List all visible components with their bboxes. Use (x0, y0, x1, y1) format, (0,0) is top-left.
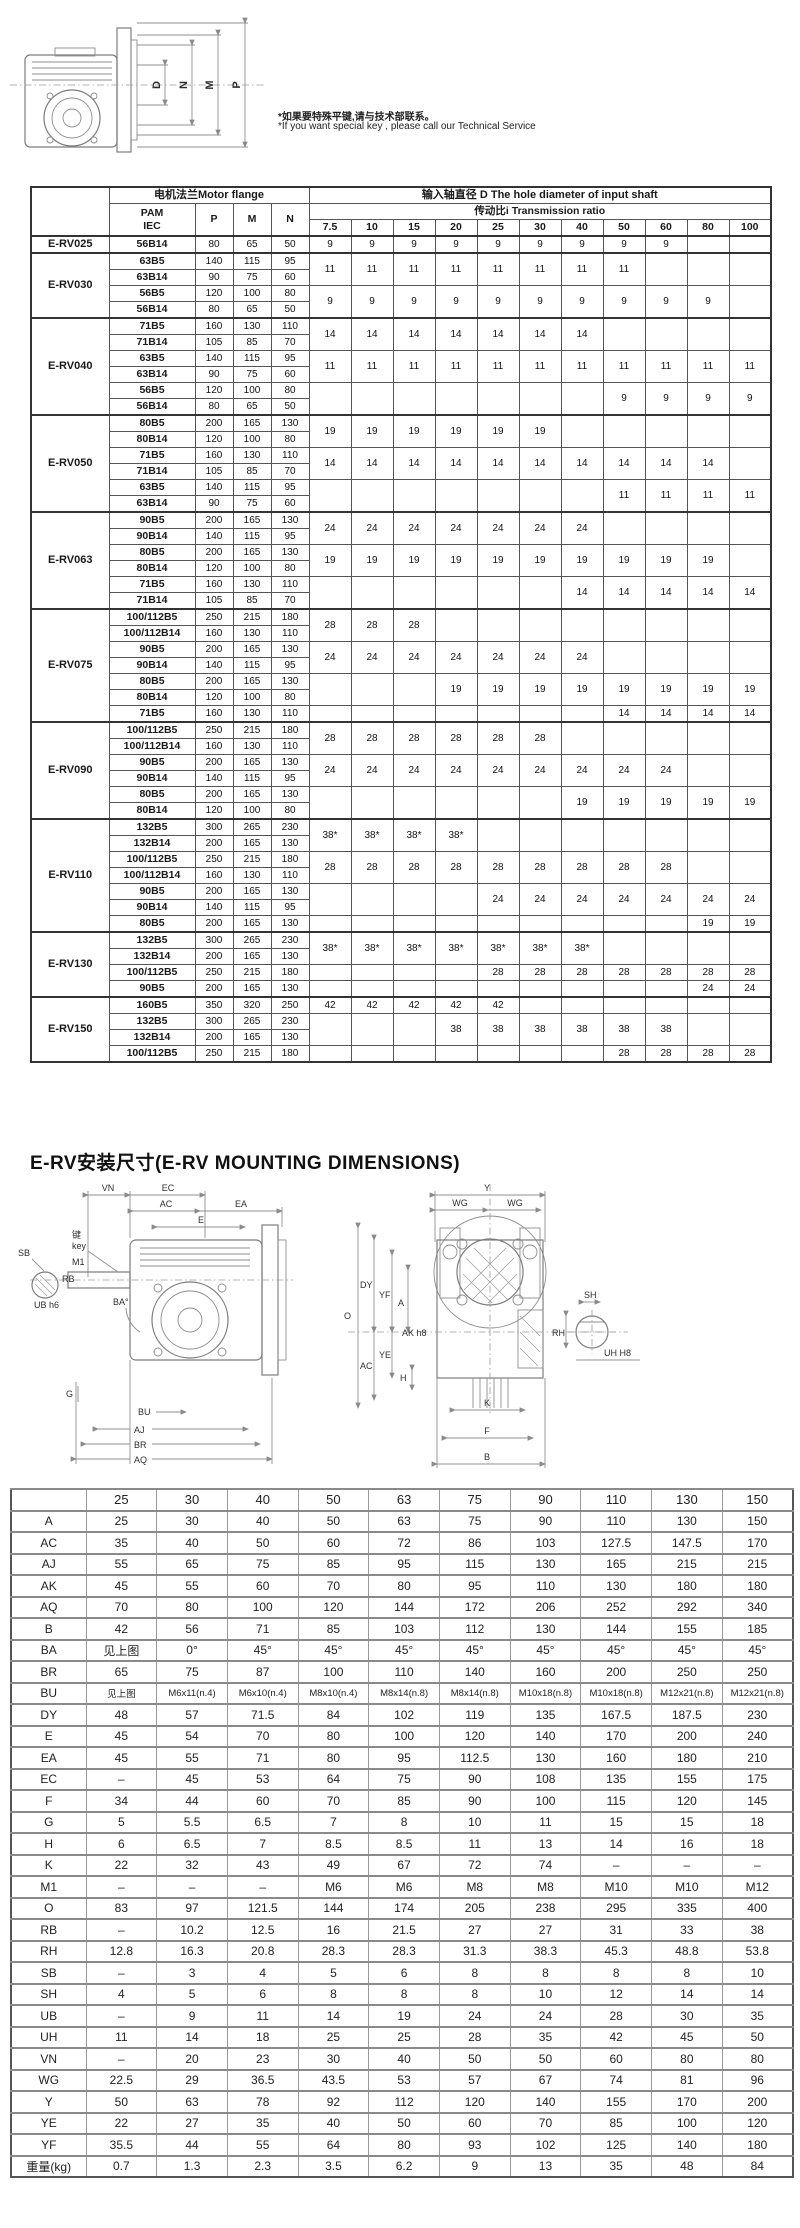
shaft-diameter-cell (645, 997, 687, 1014)
flange-dim-cell: 105 (195, 464, 233, 480)
shaft-diameter-cell: 11 (729, 351, 771, 383)
shaft-diameter-cell (561, 819, 603, 852)
dim-label-br: BR (134, 1440, 147, 1450)
table-row: 90B5200165130242424242424242424 (31, 755, 771, 771)
shaft-diameter-cell: 9 (603, 236, 645, 253)
shaft-diameter-cell: 38 (645, 1014, 687, 1046)
shaft-diameter-cell: 9 (477, 286, 519, 319)
flange-dim-cell: 140 (195, 529, 233, 545)
dim-value-cell: 20 (157, 2048, 228, 2070)
dim-label-o: O (344, 1311, 351, 1321)
flange-dim-cell: 100 (233, 383, 271, 399)
dim-value-cell: 38.3 (510, 1941, 581, 1963)
flange-dim-cell: 165 (233, 415, 271, 432)
pam-cell: 56B14 (109, 236, 195, 253)
dim-value-cell: 5 (86, 1812, 157, 1834)
dim-row-label: F (11, 1790, 86, 1812)
table-row: YE2227354050607085100120 (11, 2113, 793, 2135)
table-row: WG22.52936.543.5535767748196 (11, 2070, 793, 2092)
shaft-diameter-cell (729, 415, 771, 448)
flange-dim-cell: 95 (271, 658, 309, 674)
shaft-diameter-cell: 14 (477, 318, 519, 351)
flange-dim-cell: 215 (233, 965, 271, 981)
shaft-diameter-cell: 28 (435, 852, 477, 884)
shaft-diameter-cell: 11 (519, 253, 561, 286)
shaft-diameter-cell: 9 (519, 236, 561, 253)
size-column-header: 90 (510, 1489, 581, 1511)
dim-value-cell: 150 (722, 1511, 793, 1533)
dim-value-cell: 120 (298, 1597, 369, 1619)
shaft-diameter-cell (351, 706, 393, 723)
shaft-diameter-cell: 14 (645, 577, 687, 610)
dim-value-cell: 206 (510, 1597, 581, 1619)
flange-dim-cell: 140 (195, 900, 233, 916)
dim-value-cell: 167.5 (581, 1704, 652, 1726)
flange-dim-cell: 110 (271, 577, 309, 593)
pam-cell: 56B14 (109, 302, 195, 319)
shaft-diameter-cell (309, 981, 351, 998)
shaft-diameter-cell: 24 (561, 755, 603, 787)
dim-value-cell: 90 (510, 1511, 581, 1533)
table-row: 56B5120100809999 (31, 383, 771, 399)
shaft-diameter-cell: 14 (435, 448, 477, 480)
model-cell: E-RV050 (31, 415, 109, 512)
dim-value-cell: 86 (439, 1532, 510, 1554)
shaft-diameter-cell: 24 (477, 755, 519, 787)
dim-value-cell: 11 (227, 2005, 298, 2027)
dim-label-ak: AK h8 (402, 1328, 427, 1338)
dim-row-label: RB (11, 1919, 86, 1941)
flange-dim-cell: 130 (271, 949, 309, 965)
flange-dim-cell: 265 (233, 932, 271, 949)
dim-value-cell: 140 (510, 2091, 581, 2113)
shaft-diameter-cell: 14 (561, 448, 603, 480)
dim-value-cell: 22.5 (86, 2070, 157, 2092)
shaft-diameter-cell: 9 (393, 286, 435, 319)
flange-dim-cell: 140 (195, 480, 233, 496)
shaft-diameter-cell: 9 (519, 286, 561, 319)
dim-value-cell: 21.5 (369, 1919, 440, 1941)
dim-value-cell: 50 (369, 2113, 440, 2135)
flange-dim-cell: 130 (271, 981, 309, 998)
dim-value-cell: 112 (439, 1618, 510, 1640)
dim-value-cell: 90 (439, 1769, 510, 1791)
model-cell: E-RV075 (31, 609, 109, 722)
flange-dim-cell: 130 (233, 626, 271, 642)
dim-value-cell: 20.8 (227, 1941, 298, 1963)
dim-row-label: B (11, 1618, 86, 1640)
motor-flange-header: 电机法兰Motor flange (109, 187, 309, 204)
dim-value-cell: 36.5 (227, 2070, 298, 2092)
flange-dim-cell: 95 (271, 900, 309, 916)
flange-dim-cell: 200 (195, 949, 233, 965)
dim-row-label: K (11, 1855, 86, 1877)
shaft-diameter-cell: 24 (435, 512, 477, 545)
shaft-diameter-cell (477, 819, 519, 852)
dim-label-aq: AQ (134, 1455, 147, 1465)
size-column-header: 110 (581, 1489, 652, 1511)
shaft-diameter-cell: 38* (435, 932, 477, 965)
shaft-diameter-cell (561, 383, 603, 416)
dim-value-cell: 55 (157, 1747, 228, 1769)
shaft-diameter-cell: 9 (729, 383, 771, 416)
flange-dim-cell: 300 (195, 1014, 233, 1030)
shaft-diameter-cell (519, 577, 561, 610)
shaft-diameter-cell (729, 545, 771, 577)
dim-value-cell: 340 (722, 1597, 793, 1619)
table-row: E-RV06390B520016513024242424242424 (31, 512, 771, 529)
shaft-diameter-cell (477, 787, 519, 820)
dim-value-cell: 22 (86, 1855, 157, 1877)
side-flange (262, 1225, 278, 1375)
shaft-diameter-cell: 38* (477, 932, 519, 965)
shaft-diameter-cell: 19 (351, 415, 393, 448)
shaft-diameter-cell (351, 383, 393, 416)
shaft-diameter-cell (393, 981, 435, 998)
dim-value-cell: 7 (298, 1812, 369, 1834)
dim-label-vn: VN (102, 1183, 115, 1193)
shaft-diameter-cell (729, 722, 771, 755)
dim-value-cell: 28.3 (369, 1941, 440, 1963)
flange-dim-cell: 130 (271, 415, 309, 432)
pam-cell: 100/112B5 (109, 852, 195, 868)
dim-value-cell: 185 (722, 1618, 793, 1640)
shaft-diameter-cell (687, 253, 729, 286)
shaft-diameter-cell: 38* (435, 819, 477, 852)
table-row: M1–––M6M6M8M8M10M10M12 (11, 1876, 793, 1898)
flange-dim-cell: 110 (271, 318, 309, 335)
dim-value-cell: – (86, 2048, 157, 2070)
shaft-diameter-cell: 14 (351, 448, 393, 480)
shaft-diameter-cell: 14 (519, 448, 561, 480)
shaft-diameter-cell: 28 (729, 965, 771, 981)
shaft-diameter-cell: 14 (729, 706, 771, 723)
shaft-diameter-cell (729, 852, 771, 884)
dim-value-cell: M10x18(n.8) (510, 1683, 581, 1705)
table-row: 80B52001651301919191919 (31, 787, 771, 803)
dim-value-cell: 96 (722, 2070, 793, 2092)
dim-row-label: UB (11, 2005, 86, 2027)
dim-value-cell: – (86, 1769, 157, 1791)
dim-value-cell: 180 (652, 1747, 723, 1769)
shaft-diameter-cell (309, 480, 351, 513)
pam-cell: 160B5 (109, 997, 195, 1014)
dim-value-cell: 40 (227, 1511, 298, 1533)
shaft-diameter-cell (729, 642, 771, 674)
dim-value-cell: 45° (581, 1640, 652, 1662)
dim-value-cell: 292 (652, 1597, 723, 1619)
flange-dim-cell: 165 (233, 836, 271, 852)
shaft-diameter-cell (561, 997, 603, 1014)
dim-row-label: M1 (11, 1876, 86, 1898)
dim-value-cell: 100 (298, 1661, 369, 1683)
dim-value-cell: 155 (581, 2091, 652, 2113)
shaft-diameter-cell: 28 (393, 722, 435, 755)
dim-value-cell: – (227, 1876, 298, 1898)
dim-value-cell: 0.7 (86, 2156, 157, 2178)
dim-value-cell: 24 (510, 2005, 581, 2027)
dim-value-cell: 71 (227, 1747, 298, 1769)
size-column-header: 75 (439, 1489, 510, 1511)
shaft-diameter-cell: 14 (687, 577, 729, 610)
shaft-diameter-cell: 24 (435, 755, 477, 787)
shaft-diameter-cell: 28 (477, 965, 519, 981)
shaft-diameter-cell (645, 415, 687, 448)
flange-dim-cell: 65 (233, 236, 271, 253)
table-row: EC–4553647590108135155175 (11, 1769, 793, 1791)
dim-label-e: E (198, 1215, 204, 1225)
dim-label-d: D (151, 81, 163, 89)
dim-value-cell: 24 (439, 2005, 510, 2027)
dim-value-cell: 172 (439, 1597, 510, 1619)
dim-value-cell: 95 (439, 1575, 510, 1597)
shaft-diameter-cell: 28 (519, 722, 561, 755)
dim-value-cell: 60 (227, 1790, 298, 1812)
shaft-diameter-cell: 19 (477, 415, 519, 448)
flange-dim-cell: 165 (233, 916, 271, 933)
table-row: E-RV090100/112B5250215180282828282828 (31, 722, 771, 739)
flange-dim-cell: 180 (271, 609, 309, 626)
flange-dim-cell: 120 (195, 690, 233, 706)
dim-value-cell: 72 (439, 1855, 510, 1877)
dim-value-cell: 53.8 (722, 1941, 793, 1963)
dim-label-m1: M1 (72, 1257, 85, 1267)
flange-dim-cell: 130 (271, 916, 309, 933)
shaft-diameter-cell (519, 609, 561, 642)
dim-value-cell: 8.5 (298, 1833, 369, 1855)
dim-value-cell: 205 (439, 1898, 510, 1920)
dim-value-cell: 50 (510, 2048, 581, 2070)
shaft-diameter-cell (519, 997, 561, 1014)
dim-row-label: UH (11, 2027, 86, 2049)
table-row: 63B51401159511111111 (31, 480, 771, 496)
flange-dim-cell: 160 (195, 868, 233, 884)
dim-value-cell: 12.5 (227, 1919, 298, 1941)
ratio-value-header: 100 (729, 220, 771, 237)
dim-value-cell: M8 (439, 1876, 510, 1898)
input-shaft-diameter-header: 输入轴直径 D The hole diameter of input shaft (309, 187, 771, 204)
dim-value-cell: 13 (510, 2156, 581, 2178)
model-cell: E-RV025 (31, 236, 109, 253)
flange-dim-cell: 130 (271, 787, 309, 803)
shaft-diameter-cell: 24 (309, 512, 351, 545)
dim-row-label: SH (11, 1984, 86, 2006)
table-row: 90B520016513024242424242424 (31, 642, 771, 658)
dim-value-cell: 56 (157, 1618, 228, 1640)
shaft-diameter-cell: 19 (561, 545, 603, 577)
table-row: E-RV110132B530026523038*38*38*38* (31, 819, 771, 836)
dim-row-label: AC (11, 1532, 86, 1554)
dim-row-label: RH (11, 1941, 86, 1963)
dim-row-label: SB (11, 1962, 86, 1984)
shaft-diameter-cell: 19 (645, 787, 687, 820)
dim-value-cell: 120 (722, 2113, 793, 2135)
shaft-diameter-cell (687, 609, 729, 642)
dim-value-cell: 130 (510, 1747, 581, 1769)
dim-label-bu: BU (138, 1407, 151, 1417)
flange-dim-cell: 115 (233, 771, 271, 787)
dim-value-cell: 45° (227, 1640, 298, 1662)
dim-value-cell: 45 (86, 1575, 157, 1597)
flange-dim-cell: 180 (271, 965, 309, 981)
shaft-diameter-cell (351, 965, 393, 981)
dim-value-cell: 170 (652, 2091, 723, 2113)
table-row: 90B520016513024242424242424 (31, 884, 771, 900)
shaft-diameter-cell: 14 (645, 448, 687, 480)
dim-value-cell: 9 (157, 2005, 228, 2027)
flange-dim-cell: 200 (195, 916, 233, 933)
flange-dim-cell: 110 (271, 868, 309, 884)
shaft-diameter-cell: 28 (351, 609, 393, 642)
shaft-diameter-cell: 11 (351, 253, 393, 286)
pam-cell: 80B5 (109, 787, 195, 803)
dim-value-cell: – (86, 1962, 157, 1984)
shaft-diameter-cell: 24 (603, 755, 645, 787)
flange-dim-cell: 265 (233, 1014, 271, 1030)
dim-value-cell: 80 (722, 2048, 793, 2070)
flange-dim-cell: 130 (271, 755, 309, 771)
shaft-diameter-cell (687, 755, 729, 787)
pam-cell: 80B5 (109, 415, 195, 432)
shaft-diameter-cell (435, 916, 477, 933)
dim-value-cell: M12x21(n.8) (722, 1683, 793, 1705)
shaft-diameter-cell: 19 (477, 674, 519, 706)
flange-dim-cell: 200 (195, 415, 233, 432)
dim-value-cell: 155 (652, 1769, 723, 1791)
flange-dim-cell: 230 (271, 932, 309, 949)
flange-dim-cell: 200 (195, 674, 233, 690)
dim-value-cell: 6 (86, 1833, 157, 1855)
shaft-diameter-cell: 9 (309, 236, 351, 253)
dim-value-cell: 110 (510, 1575, 581, 1597)
shaft-diameter-cell (309, 884, 351, 916)
size-column-header: 150 (722, 1489, 793, 1511)
shaft-diameter-cell: 38* (351, 819, 393, 852)
pam-cell: 63B5 (109, 253, 195, 270)
pam-cell: 63B5 (109, 351, 195, 367)
shaft-diameter-cell: 24 (729, 981, 771, 998)
dim-value-cell: 115 (439, 1554, 510, 1576)
dim-value-cell: 85 (298, 1554, 369, 1576)
shaft-diameter-cell (687, 236, 729, 253)
flange-dim-cell: 120 (195, 803, 233, 820)
pam-cell: 100/112B5 (109, 1046, 195, 1063)
flange-dim-cell: 165 (233, 674, 271, 690)
dim-value-cell: 11 (439, 1833, 510, 1855)
shaft-diameter-cell (687, 318, 729, 351)
shaft-diameter-cell: 38 (603, 1014, 645, 1046)
flange-dim-cell: 160 (195, 706, 233, 723)
motor-flange-table: 电机法兰Motor flange输入轴直径 D The hole diamete… (30, 186, 772, 1063)
shaft-diameter-cell (687, 415, 729, 448)
dim-label-g: G (66, 1389, 73, 1399)
flange-dim-cell: 120 (195, 286, 233, 302)
flange-dim-cell: 200 (195, 755, 233, 771)
dim-value-cell: 160 (581, 1747, 652, 1769)
shaft-diameter-cell (309, 577, 351, 610)
shaft-diameter-cell: 14 (687, 706, 729, 723)
flange-dim-cell: 50 (271, 236, 309, 253)
dim-value-cell: 80 (157, 1597, 228, 1619)
table-row: 100/112B525021518028282828282828 (31, 965, 771, 981)
shaft-diameter-cell: 14 (603, 577, 645, 610)
flange-dim-cell: 95 (271, 771, 309, 787)
dim-value-cell: 14 (722, 1984, 793, 2006)
flange-dim-cell: 130 (271, 642, 309, 658)
shaft-diameter-cell (729, 236, 771, 253)
shaft-diameter-cell: 24 (351, 642, 393, 674)
dim-value-cell: 40 (369, 2048, 440, 2070)
pam-cell: 71B5 (109, 318, 195, 335)
shaft-diameter-cell (729, 448, 771, 480)
table-row: 80B52001651301919 (31, 916, 771, 933)
dim-row-label: BR (11, 1661, 86, 1683)
dim-value-cell: 33 (652, 1919, 723, 1941)
dim-value-cell: 见上图 (86, 1640, 157, 1662)
dim-value-cell: 140 (510, 1726, 581, 1748)
dim-value-cell: 43 (227, 1855, 298, 1877)
mounting-dimensions-drawing: VN EC AC EA E SB RB UB h6 键 key M1 BA° G… (8, 1182, 792, 1484)
dim-row-label: EA (11, 1747, 86, 1769)
dim-value-cell: 80 (298, 1747, 369, 1769)
shaft-diameter-cell: 19 (519, 415, 561, 448)
dim-value-cell: 5 (298, 1962, 369, 1984)
shaft-diameter-cell: 14 (351, 318, 393, 351)
dim-value-cell: 49 (298, 1855, 369, 1877)
shaft-diameter-cell: 11 (519, 351, 561, 383)
dim-value-cell: 60 (298, 1532, 369, 1554)
shaft-diameter-cell (561, 480, 603, 513)
pam-cell: 80B5 (109, 916, 195, 933)
dim-value-cell: 8.5 (369, 1833, 440, 1855)
table-row: F344460708590100115120145 (11, 1790, 793, 1812)
shaft-diameter-cell (519, 819, 561, 852)
shaft-diameter-cell (435, 577, 477, 610)
shaft-diameter-cell: 28 (309, 609, 351, 642)
dim-value-cell: 64 (298, 2134, 369, 2156)
shaft-diameter-cell (645, 318, 687, 351)
flange-dim-cell: 80 (271, 432, 309, 448)
shaft-diameter-cell: 9 (561, 236, 603, 253)
dim-value-cell: 65 (157, 1554, 228, 1576)
dim-value-cell: 4 (227, 1962, 298, 1984)
housing-outline (25, 55, 117, 147)
flange-dim-cell: 180 (271, 852, 309, 868)
dim-label-wg-right: WG (507, 1198, 523, 1208)
shaft-diameter-cell: 28 (603, 1046, 645, 1063)
dim-value-cell: 7 (227, 1833, 298, 1855)
shaft-diameter-cell (477, 480, 519, 513)
flange-dim-cell: 130 (233, 868, 271, 884)
flange-dim-cell: 165 (233, 755, 271, 771)
shaft-diameter-cell: 24 (561, 884, 603, 916)
dim-value-cell: 130 (581, 1575, 652, 1597)
dim-row-label: H (11, 1833, 86, 1855)
dim-value-cell: – (722, 1855, 793, 1877)
dim-row-label: EC (11, 1769, 86, 1791)
flange-dim-cell: 160 (195, 626, 233, 642)
dim-value-cell: 45 (157, 1769, 228, 1791)
model-cell: E-RV130 (31, 932, 109, 997)
dim-value-cell: 103 (369, 1618, 440, 1640)
pam-cell: 100/112B14 (109, 868, 195, 884)
flange-dim-cell: 165 (233, 884, 271, 900)
ratio-value-header: 50 (603, 220, 645, 237)
shaft-diameter-cell: 28 (603, 965, 645, 981)
shaft-diameter-cell: 19 (603, 545, 645, 577)
pam-cell: 56B5 (109, 286, 195, 302)
shaft-diameter-cell: 24 (393, 642, 435, 674)
